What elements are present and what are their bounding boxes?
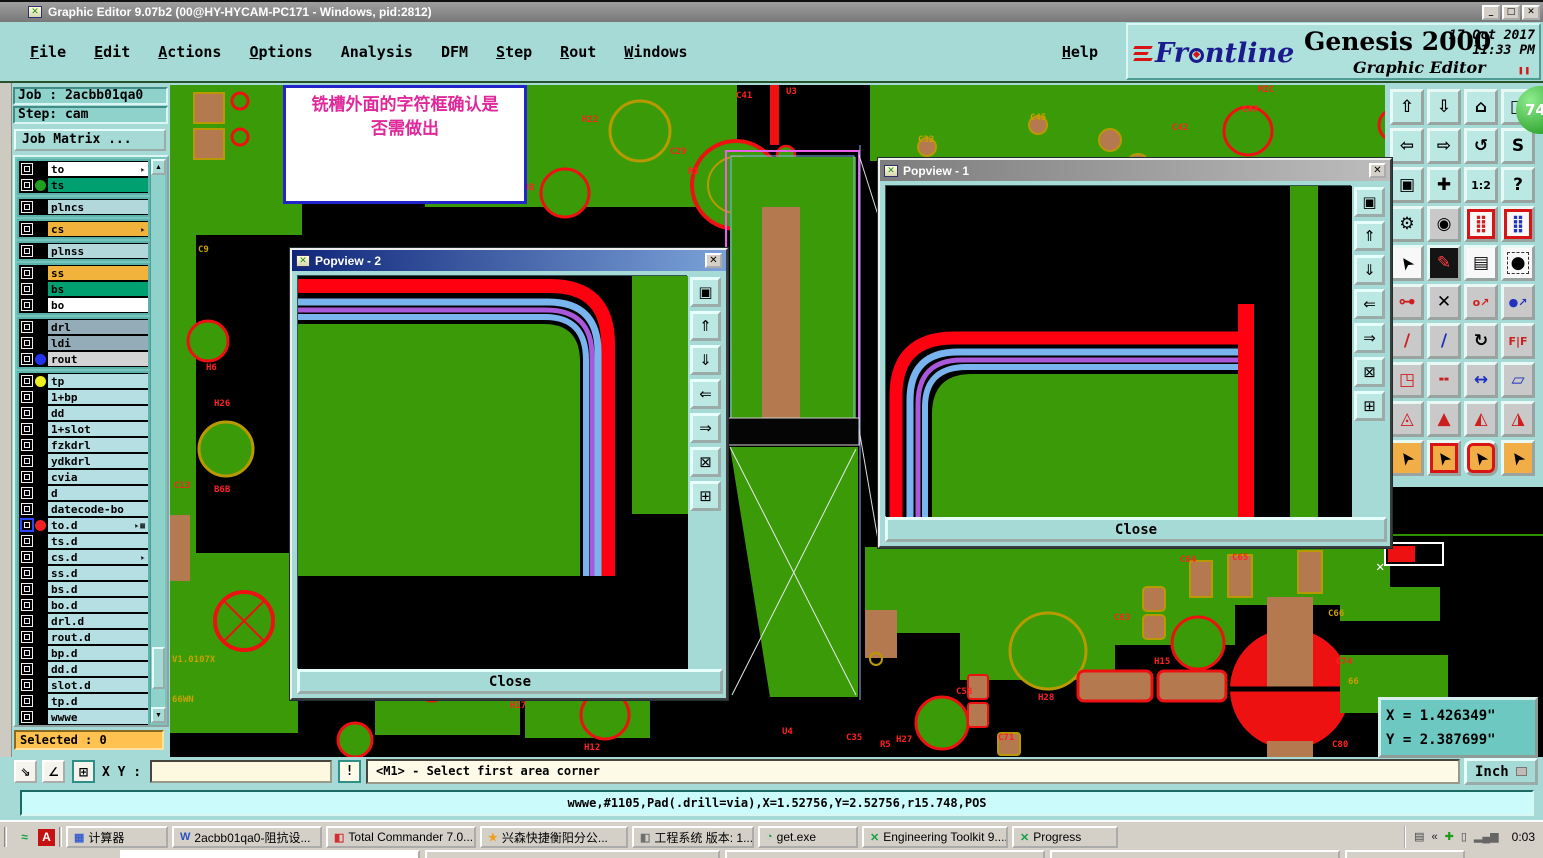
layer-color-dot: [35, 180, 46, 191]
netlist-compare-button[interactable]: ⣿: [1501, 206, 1535, 242]
zoom-up-button[interactable]: ⇧: [1390, 89, 1424, 125]
peak-left-button[interactable]: ◭: [1464, 401, 1498, 437]
pcb-label: U3: [786, 87, 797, 97]
star-icon: ★: [488, 831, 498, 844]
active-layer-pointer-icon: ➤: [136, 223, 148, 234]
taskbar-button-label: Total Commander 7.0...: [348, 830, 473, 844]
layer-checkbox[interactable]: [21, 353, 33, 365]
layer-checkbox[interactable]: [21, 503, 33, 515]
menu-actions[interactable]: Actions: [144, 39, 235, 65]
layer-row-1+slot[interactable]: 1+slot: [19, 421, 148, 437]
xy-label: X Y :: [102, 765, 141, 780]
layer-checkbox[interactable]: [21, 471, 33, 483]
popview-1-canvas[interactable]: [885, 185, 1351, 516]
pan-view-button[interactable]: ⊞: [690, 481, 721, 511]
ruler-button[interactable]: ▤: [1464, 245, 1498, 281]
taskbar-button[interactable]: ▦计算器: [66, 826, 168, 848]
layer-list: to➤tsplncscs➤plnssssbsbodrlldirouttp1+bp…: [13, 155, 169, 727]
pcb-label: C63: [1114, 613, 1130, 623]
cursor-box-button[interactable]: ➤: [1427, 440, 1461, 476]
pcb-label: H17: [510, 701, 526, 711]
layer-row-plncs[interactable]: plncs: [19, 199, 148, 215]
layer-checkbox[interactable]: [21, 267, 33, 279]
layer-color-dot: [35, 616, 46, 627]
popout-view-button[interactable]: ▣: [1354, 187, 1385, 217]
taskbar-button[interactable]: ◔get.exe: [758, 826, 858, 848]
menu-file[interactable]: File: [16, 39, 80, 65]
taskbar-button[interactable]: ✕Progress: [1012, 826, 1118, 848]
layer-color-dot: [35, 664, 46, 675]
pcb-label: 66WN: [172, 695, 194, 705]
peak-open-button[interactable]: ◬: [1390, 401, 1424, 437]
popview-1-close-button[interactable]: Close: [885, 517, 1387, 542]
layer-name[interactable]: plnss: [48, 244, 148, 258]
layer-name[interactable]: cs.d➤: [48, 550, 148, 564]
scroll-up-arrow[interactable]: ▲: [151, 159, 166, 175]
layer-color-dot: [35, 536, 46, 547]
layer-checkbox[interactable]: [21, 201, 33, 213]
layer-color-dot: [35, 696, 46, 707]
layer-name[interactable]: 1+slot: [48, 422, 148, 436]
taskbar-button[interactable]: ★兴森快捷衡阳分公...: [480, 826, 628, 848]
layer-checkbox[interactable]: [21, 679, 33, 691]
layer-color-dot: [35, 164, 46, 175]
pad-capture-button[interactable]: ●: [1501, 245, 1535, 281]
taskbar-item-partial[interactable]: [725, 850, 1045, 858]
menu-rout[interactable]: Rout: [546, 39, 610, 65]
units-toggle-button[interactable]: Inch: [1464, 758, 1538, 785]
layer-checkbox[interactable]: [21, 711, 33, 723]
layer-name[interactable]: bo.d: [48, 598, 148, 612]
pcb-label: R3: [688, 167, 699, 177]
popview-2-titlebar[interactable]: ✕ Popview - 2 ✕: [292, 250, 726, 271]
layer-color-dot: [35, 600, 46, 611]
pan-view-button[interactable]: ⊞: [1354, 391, 1385, 421]
background-window-edge: [0, 83, 12, 858]
maximize-button[interactable]: □: [1502, 5, 1520, 20]
layer-color-dot: [35, 424, 46, 435]
pcb-label: C66: [1328, 609, 1344, 619]
layer-checkbox[interactable]: [21, 663, 33, 675]
layer-row-tp.d[interactable]: tp.d: [19, 693, 148, 709]
scroll-up-button[interactable]: ⇑: [690, 311, 721, 341]
layer-name[interactable]: wwwe: [48, 710, 148, 724]
help-button[interactable]: ?: [1501, 167, 1535, 203]
layer-name[interactable]: bp.d: [48, 646, 148, 660]
date-time: 17 Oct 2017 11:33 PM: [1449, 28, 1535, 58]
menu-windows[interactable]: Windows: [610, 39, 701, 65]
layer-checkbox[interactable]: [21, 567, 33, 579]
pcb-label: H15: [1154, 657, 1170, 667]
cursor-plain-button[interactable]: ➤: [1390, 440, 1424, 476]
pcb-label: C71: [998, 733, 1014, 743]
slant-line-button[interactable]: /: [1427, 323, 1461, 359]
popview-2-canvas[interactable]: [297, 275, 687, 668]
zoom-extents-button[interactable]: ⊠: [690, 447, 721, 477]
probe-button[interactable]: ◉: [1427, 206, 1461, 242]
layer-checkbox[interactable]: [21, 551, 33, 563]
layer-checkbox[interactable]: [21, 283, 33, 295]
pcb-label: C45: [1030, 113, 1046, 123]
menu-bar: FileEditActionsOptionsAnalysisDFMStepRou…: [0, 22, 1543, 83]
cursor-round-button[interactable]: ➤: [1464, 440, 1498, 476]
mirror-button[interactable]: F|F: [1501, 323, 1535, 359]
layer-color-dot: [35, 376, 46, 387]
layer-color-dot: [35, 568, 46, 579]
network-signal-icon[interactable]: ▂▄▆: [1474, 827, 1499, 847]
layer-checkbox[interactable]: [21, 423, 33, 435]
layer-name[interactable]: ss: [48, 266, 148, 280]
pan-right-button[interactable]: ⇨: [1427, 128, 1461, 164]
taskbar-second-row: [0, 850, 1543, 858]
move-dot-button[interactable]: ●↗: [1501, 284, 1535, 320]
pcb-label: C29: [670, 147, 686, 157]
antivirus-icon[interactable]: ✚: [1445, 827, 1454, 847]
layer-name[interactable]: to.d➤▦: [48, 518, 148, 532]
pause-indicator-icon: ❚❚: [1518, 66, 1531, 76]
layer-checkbox[interactable]: [21, 321, 33, 333]
popview-close-icon[interactable]: ✕: [705, 253, 722, 268]
pcb-label: B6B: [214, 485, 230, 495]
layer-row-ts[interactable]: ts: [19, 177, 148, 193]
layer-name[interactable]: plncs: [48, 200, 148, 214]
layer-row-ldi[interactable]: ldi: [19, 335, 148, 351]
taskbar-item-partial[interactable]: [120, 850, 420, 858]
layer-name[interactable]: drl: [48, 320, 148, 334]
scroll-left-button[interactable]: ⇐: [690, 379, 721, 409]
job-matrix-button[interactable]: Job Matrix ...: [14, 129, 166, 151]
peak-right-button[interactable]: ◮: [1501, 401, 1535, 437]
windows-taskbar: ≈A▦计算器W2acbb01qa0-阻抗设...◧Total Commander…: [0, 820, 1543, 858]
layer-name[interactable]: drl.d: [48, 614, 148, 628]
layer-name[interactable]: ss.d: [48, 566, 148, 580]
layer-row-slot.d[interactable]: slot.d: [19, 677, 148, 693]
layer-name[interactable]: slot.d: [48, 678, 148, 692]
layer-color-dot: [35, 268, 46, 279]
measure-gap-button[interactable]: ↔: [1464, 362, 1498, 398]
layer-color-dot: [35, 584, 46, 595]
layer-color-dot: [35, 246, 46, 257]
active-layer-pointer-icon: ➤: [136, 163, 148, 174]
layer-name[interactable]: rout.d: [48, 630, 148, 644]
scroll-down-button[interactable]: ⇓: [1354, 255, 1385, 285]
layer-color-dot: [35, 680, 46, 691]
layer-name[interactable]: ts.d: [48, 534, 148, 548]
layer-scrollbar[interactable]: ▲ ▼: [150, 159, 165, 723]
sidebar: Job : 2acbb01qa0 Step: cam Job Matrix ..…: [12, 85, 170, 757]
frontline-logo: Frntline: [1134, 38, 1294, 69]
layer-row-bo[interactable]: bo: [19, 297, 148, 313]
layer-checkbox[interactable]: [21, 439, 33, 451]
globe-icon: ◔: [766, 831, 773, 843]
layer-name[interactable]: cvia: [48, 470, 148, 484]
layer-name[interactable]: dd.d: [48, 662, 148, 676]
alert-button[interactable]: !: [338, 760, 361, 783]
layer-row-rout.d[interactable]: rout.d: [19, 629, 148, 645]
layer-color-dot: [35, 224, 46, 235]
layer-checkbox[interactable]: [21, 337, 33, 349]
scrollbar-thumb[interactable]: [152, 647, 165, 689]
layer-checkbox[interactable]: [21, 615, 33, 627]
popout-view-button[interactable]: ▣: [690, 277, 721, 307]
netlist-check-button[interactable]: ⣿: [1464, 206, 1498, 242]
taskbar-button-label: 计算器: [88, 829, 124, 846]
layer-name[interactable]: to➤: [48, 162, 148, 176]
printer-icon[interactable]: ▤: [1414, 827, 1424, 847]
pcb-label: H27: [896, 735, 912, 745]
popview-1-tools: ▣⇑⇓⇐⇒⊠⊞: [1354, 187, 1388, 421]
application-window: ✕ Graphic Editor 9.07b2 (00@HY-HYCAM-PC1…: [0, 0, 1543, 858]
pcb-label: C41: [736, 91, 752, 101]
pcb-label: H12: [584, 743, 600, 753]
layer-checkbox[interactable]: [21, 695, 33, 707]
layer-color-dot: [35, 472, 46, 483]
layer-name[interactable]: tp.d: [48, 694, 148, 708]
select-pointer-button[interactable]: ➤: [1390, 245, 1424, 281]
layer-row-bs.d[interactable]: bs.d: [19, 581, 148, 597]
layer-row-fzkdrl[interactable]: fzkdrl: [19, 437, 148, 453]
menu-step[interactable]: Step: [482, 39, 546, 65]
layer-row-rout[interactable]: rout: [19, 351, 148, 367]
layer-checkbox[interactable]: [21, 299, 33, 311]
grid-toggle-button[interactable]: ⊞: [72, 760, 95, 783]
erase-button[interactable]: ✕: [1427, 284, 1461, 320]
layer-checkbox[interactable]: [21, 647, 33, 659]
layer-color-dot: [35, 202, 46, 213]
layer-name[interactable]: bo: [48, 298, 148, 312]
svg-text:✕: ✕: [1376, 559, 1384, 575]
layer-name[interactable]: ldi: [48, 336, 148, 350]
collapse-chevrons-icon[interactable]: «: [1432, 827, 1438, 847]
menu-help[interactable]: Help: [1048, 39, 1112, 65]
layer-row-to[interactable]: to➤: [19, 161, 148, 177]
title-bar[interactable]: ✕ Graphic Editor 9.07b2 (00@HY-HYCAM-PC1…: [0, 0, 1543, 22]
layer-color-dot: [35, 284, 46, 295]
layer-color-dot: [35, 300, 46, 311]
zoom-extents-button[interactable]: ⊠: [1354, 357, 1385, 387]
layer-name[interactable]: d: [48, 486, 148, 500]
menu-dfm[interactable]: DFM: [427, 39, 482, 65]
menu-items: FileEditActionsOptionsAnalysisDFMStepRou…: [0, 39, 702, 65]
layer-name[interactable]: dd: [48, 406, 148, 420]
layer-checkbox[interactable]: [21, 223, 33, 235]
layer-checkbox[interactable]: [21, 179, 33, 191]
view-toolbar: ⇧⇩⌂◫⇦⇨↺S▣✚1:2?⚙◉⣿⣿➤✎▤●⊶✕o↗●↗//↻F|F◳╍↔▱◬▲…: [1385, 85, 1543, 487]
layer-row-ss[interactable]: ss: [19, 265, 148, 281]
peak-solid-button[interactable]: ▲: [1427, 401, 1461, 437]
popview-2-window[interactable]: ✕ Popview - 2 ✕ ▣⇑⇓⇐⇒⊠⊞ Close: [290, 248, 728, 700]
popview-close-icon[interactable]: ✕: [1369, 163, 1386, 178]
route-cursor-button[interactable]: ➤: [1501, 440, 1535, 476]
taskbar-button[interactable]: ◧Total Commander 7.0...: [326, 826, 476, 848]
pcb-label: C65: [1232, 553, 1248, 563]
layer-row-ts.d[interactable]: ts.d: [19, 533, 148, 549]
popview-1-titlebar[interactable]: ✕ Popview - 1 ✕: [880, 160, 1390, 181]
layer-checkbox[interactable]: [21, 455, 33, 467]
taskbar-button-label: Progress: [1033, 830, 1081, 844]
layer-color-dot: [35, 632, 46, 643]
pdf-icon[interactable]: A: [38, 829, 55, 846]
layer-row-ydkdrl[interactable]: ydkdrl: [19, 453, 148, 469]
scroll-right-button[interactable]: ⇒: [1354, 323, 1385, 353]
zoom-down-button[interactable]: ⇩: [1427, 89, 1461, 125]
layer-checkbox[interactable]: [21, 535, 33, 547]
layer-name[interactable]: 1+bp: [48, 390, 148, 404]
layer-color-dot: [35, 322, 46, 333]
active-layer-pointer-icon: ➤: [136, 551, 148, 562]
layer-checkbox[interactable]: [21, 407, 33, 419]
layer-row-bp.d[interactable]: bp.d: [19, 645, 148, 661]
layer-row-dd[interactable]: dd: [19, 405, 148, 421]
layer-color-dot: [35, 552, 46, 563]
serpentine-button[interactable]: S: [1501, 128, 1535, 164]
scroll-down-arrow[interactable]: ▼: [151, 707, 166, 723]
link-nets-button[interactable]: ⊶: [1390, 284, 1424, 320]
taskbar-button[interactable]: W2acbb01qa0-阻抗设...: [172, 826, 322, 848]
layer-row-drl.d[interactable]: drl.d: [19, 613, 148, 629]
pcb-label: C74: [1336, 657, 1352, 667]
layer-checkbox[interactable]: [21, 583, 33, 595]
taskbar-button[interactable]: ◧工程系统 版本: 1....: [632, 826, 754, 848]
corner-move-button[interactable]: ◳: [1390, 362, 1424, 398]
popview-2-close-button[interactable]: Close: [297, 669, 723, 694]
center-view-button[interactable]: ✚: [1427, 167, 1461, 203]
layer-checkbox[interactable]: [21, 375, 33, 387]
layer-color-dot: [35, 354, 46, 365]
pcb-label: MIC: [1258, 85, 1274, 95]
menu-edit[interactable]: Edit: [80, 39, 144, 65]
layer-name[interactable]: bs: [48, 282, 148, 296]
layer-row-tp[interactable]: tp: [19, 373, 148, 389]
rotate-button[interactable]: ↻: [1464, 323, 1498, 359]
layer-checkbox[interactable]: [21, 519, 33, 531]
angle-mode-button[interactable]: ∠: [42, 760, 65, 783]
previous-view-button[interactable]: ↺: [1464, 128, 1498, 164]
scroll-right-button[interactable]: ⇒: [690, 413, 721, 443]
layer-color-dot: [35, 712, 46, 723]
layer-color-dot: [35, 456, 46, 467]
units-dropdown-icon: [1516, 767, 1527, 776]
layer-name[interactable]: rout: [48, 352, 148, 366]
menu-options[interactable]: Options: [235, 39, 326, 65]
snap-mode-button[interactable]: ⇘: [14, 760, 37, 783]
layer-name[interactable]: cs➤: [48, 222, 148, 236]
job-name: Job : 2acbb01qa0: [13, 87, 168, 105]
genesis-app-icon: ✕: [28, 6, 42, 18]
cursor-coordinates: X = 1.426349" Y = 2.387699": [1378, 697, 1538, 758]
slant-up-button[interactable]: /: [1390, 323, 1424, 359]
layer-checkbox[interactable]: [21, 599, 33, 611]
taskbar-item-partial[interactable]: [1050, 850, 1340, 858]
logo-dot-icon: [1189, 48, 1204, 63]
layer-row-bs[interactable]: bs: [19, 281, 148, 297]
layer-color-dot: [35, 338, 46, 349]
scroll-down-button[interactable]: ⇓: [690, 345, 721, 375]
step-name: Step: cam: [13, 106, 168, 124]
layer-name[interactable]: ydkdrl: [48, 454, 148, 468]
pcb-label: H26: [214, 399, 230, 409]
popview-1-window[interactable]: ✕ Popview - 1 ✕ ▣⇑⇓⇐⇒⊠⊞ Close: [878, 158, 1392, 548]
layer-name[interactable]: bs.d: [48, 582, 148, 596]
layer-checkbox[interactable]: [21, 391, 33, 403]
layer-name[interactable]: fzkdrl: [48, 438, 148, 452]
layer-checkbox[interactable]: [21, 487, 33, 499]
edit-marker-button[interactable]: ✎: [1427, 245, 1461, 281]
system-app-icon: ◧: [640, 831, 650, 844]
layer-color-dot: [35, 392, 46, 403]
quick-launch-icon[interactable]: ≈: [16, 829, 33, 846]
layer-row-bo.d[interactable]: bo.d: [19, 597, 148, 613]
layer-row-plnss[interactable]: plnss: [19, 243, 148, 259]
menu-analysis[interactable]: Analysis: [327, 39, 427, 65]
layer-name[interactable]: tp: [48, 374, 148, 388]
layer-row-ss.d[interactable]: ss.d: [19, 565, 148, 581]
annotation-line: 否需做出: [286, 117, 524, 141]
pcb-label: H6: [206, 363, 217, 373]
grow-dot-button[interactable]: o↗: [1464, 284, 1498, 320]
layer-row-to.d[interactable]: to.d➤▦: [19, 517, 148, 533]
layer-row-cs.d[interactable]: cs.d➤: [19, 549, 148, 565]
copy-shape-button[interactable]: ▱: [1501, 362, 1535, 398]
taskbar-item-partial[interactable]: [1345, 850, 1465, 858]
minimize-button[interactable]: _: [1482, 5, 1500, 20]
layer-color-dot: [35, 488, 46, 499]
zoom-1-2-button[interactable]: 1:2: [1464, 167, 1498, 203]
scroll-up-button[interactable]: ⇑: [1354, 221, 1385, 251]
taskbar-button-label: 兴森快捷衡阳分公...: [502, 829, 608, 846]
genesis-icon: ✕: [870, 831, 879, 844]
feature-info: wwwe,#1105,Pad(.drill=via),X=1.52756,Y=2…: [20, 790, 1534, 816]
tray-clock: 0:03: [1506, 830, 1535, 844]
pan-left-button[interactable]: ⇦: [1390, 128, 1424, 164]
layer-row-d[interactable]: d: [19, 485, 148, 501]
layer-checkbox[interactable]: [21, 631, 33, 643]
taskbar-item-partial[interactable]: [425, 850, 720, 858]
layer-row-drl[interactable]: drl: [19, 319, 148, 335]
taskbar-button[interactable]: ✕Engineering Toolkit 9....: [862, 826, 1008, 848]
layer-color-dot: [35, 648, 46, 659]
layer-row-cs[interactable]: cs➤: [19, 221, 148, 237]
layer-color-dot: [35, 408, 46, 419]
clipboard-icon[interactable]: ▯: [1461, 827, 1467, 847]
scroll-left-button[interactable]: ⇐: [1354, 289, 1385, 319]
genesis-icon: ✕: [1020, 831, 1029, 844]
layer-name[interactable]: ts: [48, 178, 148, 192]
layer-row-dd.d[interactable]: dd.d: [19, 661, 148, 677]
layer-row-wwwe[interactable]: wwwe: [19, 709, 148, 725]
pcb-label: C47: [1242, 105, 1258, 115]
layer-row-cvia[interactable]: cvia: [19, 469, 148, 485]
product-subtitle: Graphic Editor: [1353, 58, 1486, 77]
home-view-button[interactable]: ⌂: [1464, 89, 1498, 125]
speed-lines-icon: [1134, 46, 1152, 61]
pcb-label: 66: [1348, 677, 1359, 687]
popview-title: Popview - 1: [903, 164, 969, 178]
layer-row-1+bp[interactable]: 1+bp: [19, 389, 148, 405]
pcb-label: V1.0107X: [172, 655, 215, 665]
layer-name[interactable]: datecode-bo: [48, 502, 148, 516]
taskbar-button-label: Engineering Toolkit 9....: [883, 830, 1008, 844]
stretch-button[interactable]: ╍: [1427, 362, 1461, 398]
layer-row-datecode-bo[interactable]: datecode-bo: [19, 501, 148, 517]
xy-coordinate-input[interactable]: [150, 760, 332, 783]
layer-checkbox[interactable]: [21, 245, 33, 257]
annotation-line: 铣槽外面的字符框确认是: [286, 93, 524, 117]
layer-checkbox[interactable]: [21, 163, 33, 175]
corner-zoom-button[interactable]: ▣: [1390, 167, 1424, 203]
close-button[interactable]: ✕: [1522, 5, 1540, 20]
setup-button[interactable]: ⚙: [1390, 206, 1424, 242]
